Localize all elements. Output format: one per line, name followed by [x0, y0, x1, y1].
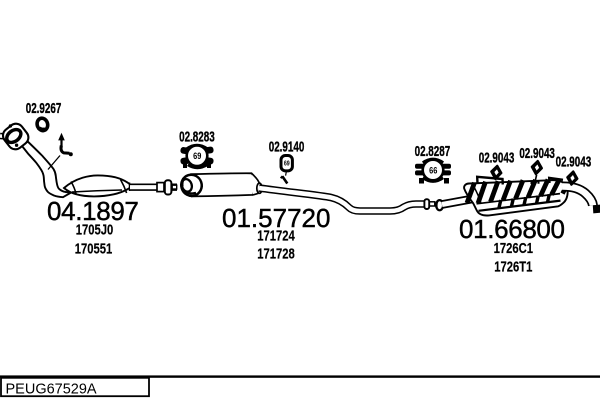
svg-text:02.8283: 02.8283	[179, 129, 215, 145]
svg-text:66: 66	[429, 164, 437, 175]
svg-text:02.9267: 02.9267	[26, 100, 62, 116]
svg-text:02.9140: 02.9140	[269, 139, 305, 155]
svg-text:170551: 170551	[75, 240, 113, 257]
svg-text:02.8287: 02.8287	[415, 143, 451, 159]
svg-text:02.9043: 02.9043	[479, 149, 515, 165]
svg-text:02.9043: 02.9043	[556, 154, 592, 170]
svg-text:69: 69	[284, 160, 290, 168]
svg-text:1705J0: 1705J0	[76, 221, 114, 238]
svg-text:1726C1: 1726C1	[494, 239, 533, 256]
svg-text:171724: 171724	[257, 227, 295, 244]
svg-text:69: 69	[193, 150, 201, 161]
svg-text:1726T1: 1726T1	[494, 258, 532, 275]
svg-text:PEUG67529A: PEUG67529A	[6, 381, 97, 397]
svg-text:02.9043: 02.9043	[519, 145, 555, 161]
svg-text:171728: 171728	[257, 245, 295, 262]
